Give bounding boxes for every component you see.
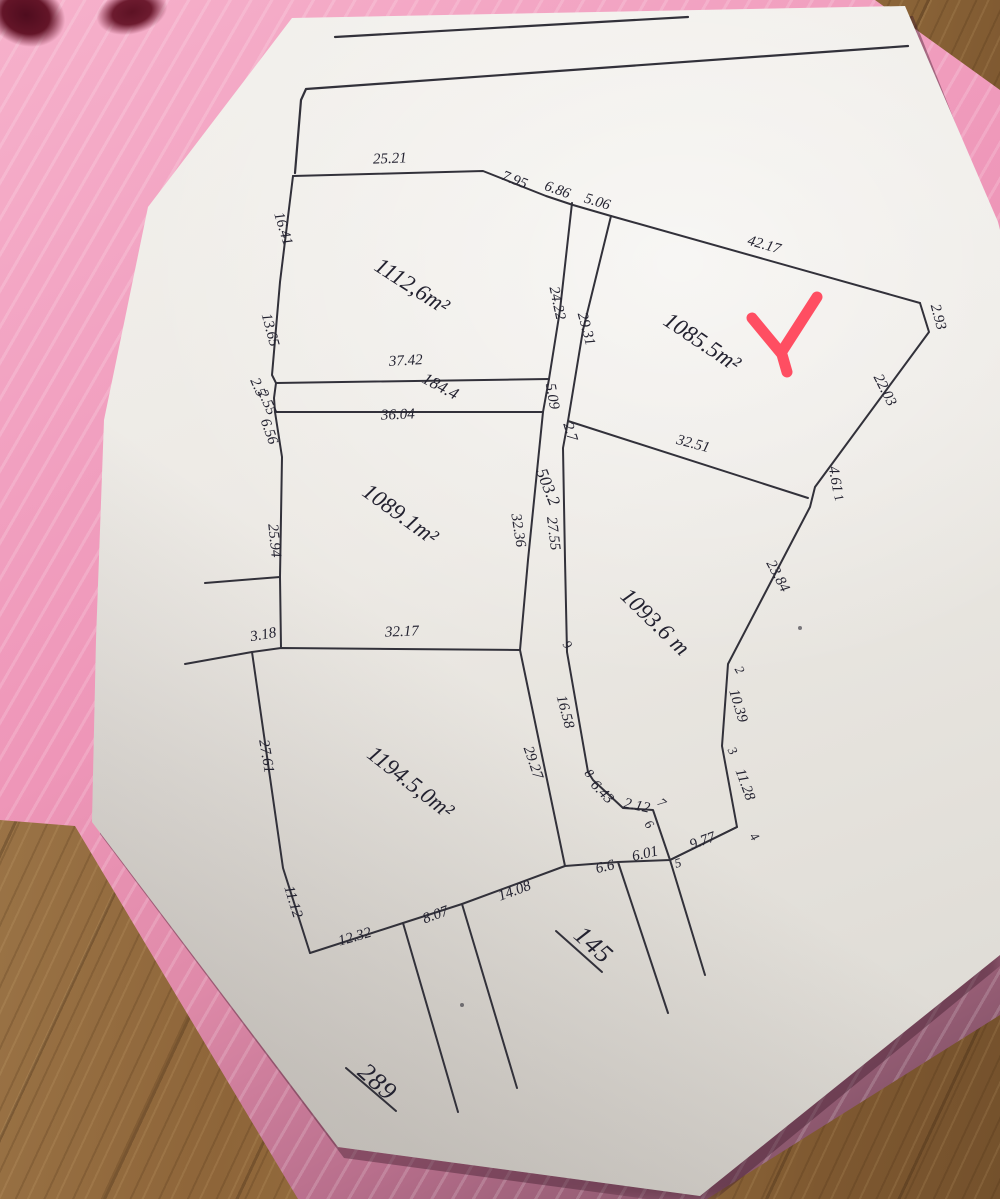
- road-number-label: 289: [352, 1057, 403, 1107]
- edge-measurement-label: 4.61: [825, 465, 845, 494]
- edge-measurement-label: 36.04: [380, 406, 416, 423]
- edge-measurement-label: 37.42: [388, 352, 424, 370]
- road-number-label: 145: [568, 920, 619, 970]
- edge-measurement-label: 10.39: [725, 687, 750, 724]
- vertex-number-label: 6: [642, 817, 658, 832]
- boundary-line-line-32-51: [568, 421, 808, 498]
- edge-measurement-label: 11.12: [280, 884, 305, 920]
- edge-measurement-label: 42.17: [746, 233, 784, 258]
- survey-diagram-svg: 25.217.956.865.0642.172.9322.034.6123.84…: [0, 0, 1000, 1199]
- edge-measurement-label: 29.31: [574, 311, 598, 348]
- edge-measurement-label: 12.32: [336, 925, 373, 950]
- edge-measurement-label: 9.77: [688, 829, 720, 854]
- edge-measurement-label: 29.27: [520, 744, 547, 783]
- edge-measurement-label: 13.65: [258, 312, 282, 349]
- vertex-number-label: 5: [673, 854, 684, 870]
- parcel-area-label: 1085.5m²: [659, 307, 746, 377]
- edge-measurement-label: 27.55: [543, 516, 563, 552]
- boundary-line-neighbor-2: [462, 904, 517, 1088]
- boundary-line-road-top: [335, 17, 688, 37]
- red-checkmark: [752, 297, 817, 372]
- strip-area-label: 184.4: [419, 369, 462, 404]
- edge-measurement-label: 14.08: [496, 878, 534, 905]
- vertex-number-label: 8: [582, 766, 598, 781]
- vertex-number-label: 1: [831, 492, 847, 503]
- ink-speck: [460, 1003, 464, 1007]
- edge-measurement-label: 32.51: [674, 432, 712, 456]
- edge-measurement-label: 11.28: [732, 767, 758, 804]
- boundary-line-south-1089: [252, 648, 520, 652]
- edge-measurement-label: 25.21: [373, 150, 407, 167]
- boundary-line-neighbor-3: [618, 862, 668, 1013]
- edge-measurement-label: 8.07: [421, 903, 453, 928]
- parcel-area-label: 1089.1m²: [358, 478, 444, 550]
- boundary-line-stub-west-1089: [205, 577, 280, 583]
- boundary-line-neighbor-1: [403, 923, 458, 1112]
- edge-measurement-label: 7.95: [499, 168, 530, 193]
- edge-measurement-label: 6.43: [587, 777, 617, 807]
- edge-measurement-label: 6.6: [594, 857, 616, 877]
- edge-measurement-label: 24.22: [546, 285, 569, 322]
- edge-measurement-label: 6.86: [542, 178, 573, 202]
- strip-area-label: 503.2: [532, 466, 564, 509]
- parcel-area-label: 1112,6m²: [370, 253, 454, 320]
- edge-measurement-label: 25.94: [264, 523, 283, 559]
- vertex-number-label: 7: [655, 795, 670, 811]
- edge-measurement-label: 3.18: [248, 625, 278, 646]
- edge-measurement-label: 16.41: [270, 210, 295, 247]
- boundary-line-line-37-42: [276, 379, 549, 383]
- vertex-number-label: 4: [747, 829, 763, 843]
- parcel-area-label: 1194.5,0m²: [363, 741, 460, 824]
- edge-measurement-label: 32.36: [507, 511, 528, 548]
- ink-speck: [798, 626, 802, 630]
- edge-measurement-label: 2.93: [927, 302, 949, 331]
- vertex-number-label: 2: [732, 663, 748, 677]
- edge-measurement-label: 6.01: [631, 843, 660, 864]
- vertex-number-label: 3: [724, 743, 741, 757]
- boundary-line-stub-west-1194: [185, 652, 252, 664]
- parcel-area-label: 1093.6 m: [616, 583, 695, 660]
- edge-measurement-label: 2.12: [622, 796, 651, 817]
- edge-measurement-label: 32.17: [384, 623, 421, 640]
- edge-measurement-label: 5.06: [582, 191, 612, 214]
- edge-measurement-label: 27.61: [255, 738, 277, 774]
- edge-measurement-label: 16.58: [553, 694, 577, 731]
